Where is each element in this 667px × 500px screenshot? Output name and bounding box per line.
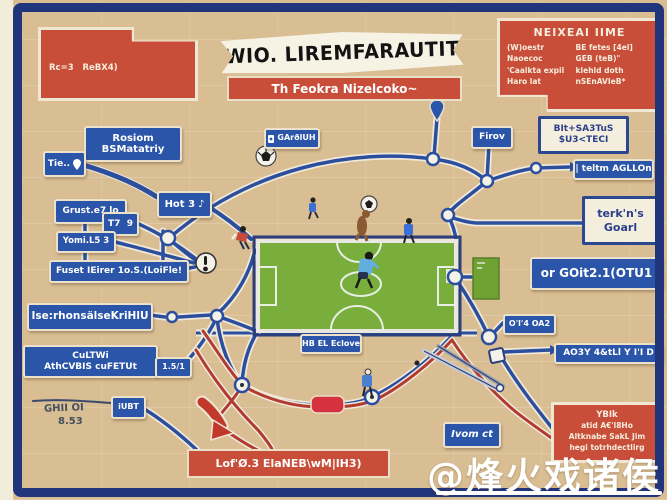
callout-label: Goarl (604, 221, 637, 235)
node-label: 1.5/1 (162, 363, 185, 372)
node-hbel: HB EL Eclove (300, 334, 362, 354)
map-pin-icon (429, 99, 445, 123)
node-label: AO3Y 4&tLl Y I'I D (563, 348, 654, 358)
card-line: BE fetes [4el] (576, 42, 652, 53)
node-label: | teltm AGLLOn (575, 164, 651, 174)
subtitle-banner: Th Feokra Nizelcoko~ (227, 76, 462, 101)
card-line: Rc=3 ReBX4) (49, 62, 187, 74)
card-line: Altknabe SakL Jim (559, 432, 655, 443)
node-label: Ivom ct (451, 429, 493, 440)
node-label: Tie.. (48, 159, 70, 169)
node-label: GArðlUH (277, 134, 315, 143)
node-rosiom: Rosiom BSMatatriy (84, 126, 182, 162)
node-orgoit: or GOit2.1(OTU1 (530, 257, 663, 290)
node-ao3y: AO3Y 4&tLl Y I'I D (554, 343, 663, 364)
node-label: O'l'4 OA2 (509, 320, 550, 329)
badge-icon (268, 135, 274, 143)
soccer-ball-icon-small (361, 196, 377, 212)
card-line: GEB (teB)" (576, 53, 652, 64)
card-column-right: BE fetes [4el] GEB (teB)" klehld doth nS… (576, 42, 652, 87)
token-circle-icon (196, 253, 216, 273)
bottom-banner: Lof'Ø.3 ElaNEB\wM|lH3) (187, 449, 390, 478)
node-label: Firov (479, 132, 505, 142)
node-label: Fuset IEirer 1o.S.(LoiFle! (56, 266, 182, 276)
node-label: iUBT (118, 403, 139, 412)
label-ghii: GHII OI (44, 402, 84, 414)
watermark-underline (436, 491, 662, 495)
node-iubt: iUBT (111, 396, 146, 419)
node-label: or GOit2.1(OTU1 (541, 267, 652, 280)
node-ol4: O'l'4 OA2 (503, 314, 556, 335)
pin-icon (73, 159, 81, 170)
music-note-icon: ♪ (198, 199, 204, 210)
node-label: HB EL Eclove (302, 340, 360, 349)
node-label: Yomi.L5 3 (63, 237, 109, 247)
bottom-banner-text: Lof'Ø.3 ElaNEB\wM|lH3) (215, 457, 361, 470)
card-column-left: (W)oestr Naoecoc 'Caalkta expil Haro lat (507, 42, 570, 87)
red-pill (311, 396, 344, 413)
callout-goarl: terk'n's Goarl (582, 196, 659, 245)
callout-bits: BIt+SA3TuS $U3<TECI (538, 116, 629, 154)
card-line: atid A€'l8Ho (559, 421, 655, 432)
page-title: WIO. LIREMFARAUTIT (224, 37, 460, 68)
node-label: Rosiom (102, 133, 165, 144)
subtitle-text: Th Feokra Nizelcoko~ (272, 82, 418, 96)
card-title: NEIXEAI IIME (507, 26, 652, 39)
card-line: (W)oestr (507, 42, 570, 53)
node-label: T7 9 (108, 219, 133, 229)
player-blue-small (309, 197, 318, 219)
top-right-card: NEIXEAI IIME (W)oestr Naoecoc 'Caalkta e… (497, 18, 662, 112)
node-label: AthCVBIS cuFETUt (44, 362, 137, 372)
node-ivom: Ivom ct (443, 422, 501, 448)
callout-label: BIt+SA3TuS (554, 124, 614, 135)
node-label: Ise:rhonsälseKriHlU (32, 311, 149, 323)
node-hot3: Hot 3 ♪ (157, 191, 212, 218)
node-yomi: Yomi.L5 3 (56, 231, 116, 253)
label-score: 8.53 (58, 416, 83, 427)
card-line: YBIk (559, 409, 655, 421)
node-teltm: | teltm AGLLOn (573, 159, 654, 180)
callout-label: $U3<TECI (559, 135, 609, 146)
node-label: Hot 3 (165, 199, 195, 210)
node-cultwi: CuLTWi AthCVBIS cuFETUt (23, 345, 158, 378)
node-ratio: 1.5/1 (155, 357, 192, 378)
node-garolum: GArðlUH (264, 128, 320, 149)
node-firov: Firov (471, 126, 513, 149)
card-line: Naoecoc (507, 53, 570, 64)
card-line: klehld doth (576, 65, 652, 76)
top-left-card: Rc=3 ReBX4) leatzo' 4C= [Rovbodlattlofdm… (38, 27, 198, 101)
node-label: BSMatatriy (102, 144, 165, 155)
cube-icon (489, 348, 505, 364)
node-label: CuLTWi (44, 351, 137, 361)
card-line: 'Caalkta expil (507, 65, 570, 76)
node-tie: Tie.. (43, 151, 86, 177)
soccer-ball-icon (256, 146, 276, 166)
mini-field-card (473, 258, 499, 299)
card-line: nSEnAVIeB* (576, 76, 652, 87)
card-line: Haro lat (507, 76, 570, 87)
node-iserhon: Ise:rhonsälseKriHlU (27, 303, 153, 331)
node-fuset: Fuset IEirer 1o.S.(LoiFle! (49, 260, 189, 283)
infographic-canvas: WIO. LIREMFARAUTIT Th Feokra Nizelcoko~ … (0, 0, 667, 500)
callout-label: terk'n's (597, 207, 644, 221)
